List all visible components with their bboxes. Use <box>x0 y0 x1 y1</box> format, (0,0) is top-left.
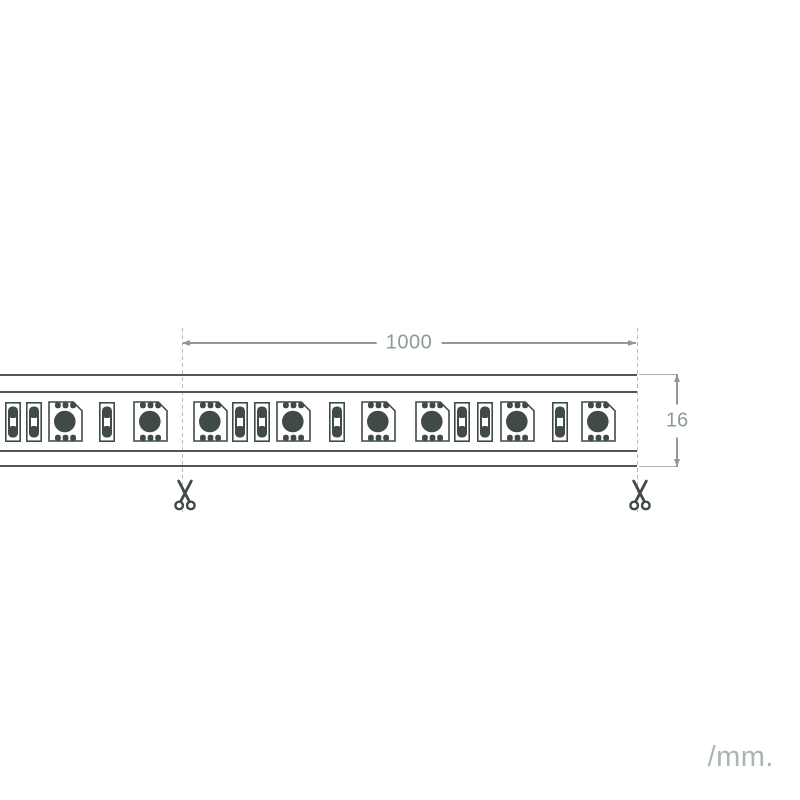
led-chip <box>581 401 616 442</box>
width-arrow-down-icon <box>674 459 680 467</box>
led-chip <box>415 401 450 442</box>
resistor-chip <box>99 402 115 442</box>
resistor-chip <box>477 402 493 442</box>
width-extension-line-top <box>639 374 678 375</box>
led-chip <box>361 401 396 442</box>
resistor-chip <box>329 402 345 442</box>
led-chip <box>500 401 535 442</box>
resistor-chip <box>232 402 248 442</box>
led-chip <box>193 401 228 442</box>
resistor-chip <box>5 402 21 442</box>
led-chip <box>48 401 83 442</box>
width-arrow-up-icon <box>674 374 680 382</box>
width-extension-line-bottom <box>639 466 678 467</box>
resistor-chip <box>552 402 568 442</box>
length-arrow-left-icon <box>182 340 190 346</box>
width-dimension-value: 16 <box>663 405 691 438</box>
unit-label: /mm. <box>708 741 774 774</box>
resistor-chip <box>26 402 42 442</box>
led-chip <box>133 401 168 442</box>
led-strip-diagram: 1000 16 /mm. <box>0 0 800 800</box>
resistor-chip <box>254 402 270 442</box>
strip-components-layer <box>0 0 800 800</box>
length-arrow-right-icon <box>628 340 636 346</box>
length-dimension-value: 1000 <box>377 332 442 355</box>
led-chip <box>276 401 311 442</box>
resistor-chip <box>454 402 470 442</box>
